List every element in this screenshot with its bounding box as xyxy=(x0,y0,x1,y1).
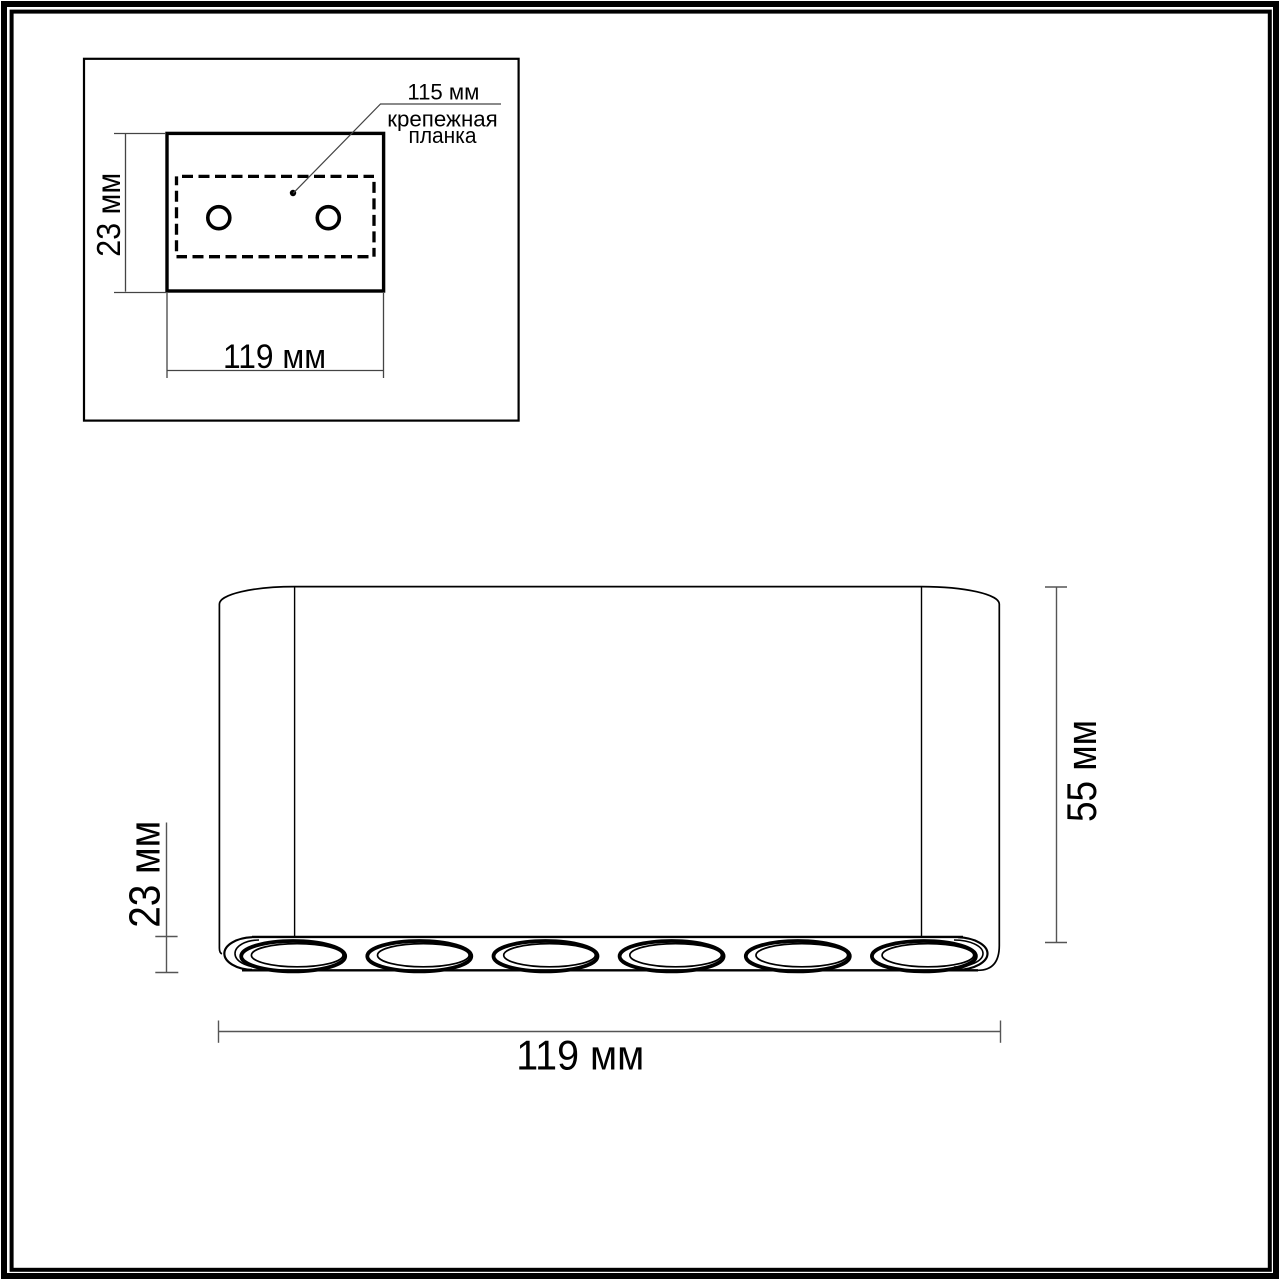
svg-text:119 мм: 119 мм xyxy=(516,1032,644,1079)
svg-text:планка: планка xyxy=(409,123,478,148)
svg-text:119 мм: 119 мм xyxy=(223,338,326,376)
svg-text:23 мм: 23 мм xyxy=(121,821,169,928)
svg-text:55 мм: 55 мм xyxy=(1058,720,1105,822)
svg-text:23 мм: 23 мм xyxy=(90,173,127,257)
svg-text:115 мм: 115 мм xyxy=(407,79,479,104)
